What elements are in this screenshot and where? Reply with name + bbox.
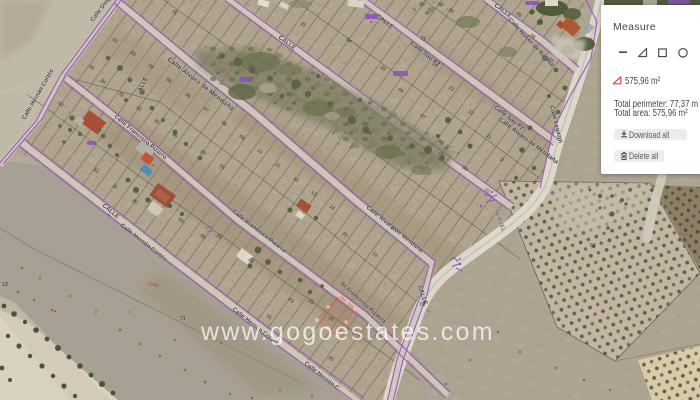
- svg-text:02: 02: [420, 302, 426, 308]
- svg-text:62: 62: [590, 243, 596, 249]
- svg-text:71: 71: [180, 316, 186, 322]
- svg-text:▴: ▴: [108, 212, 110, 217]
- svg-text:12: 12: [2, 282, 8, 288]
- svg-text:▴: ▴: [152, 162, 154, 167]
- svg-text:▴: ▴: [54, 308, 56, 313]
